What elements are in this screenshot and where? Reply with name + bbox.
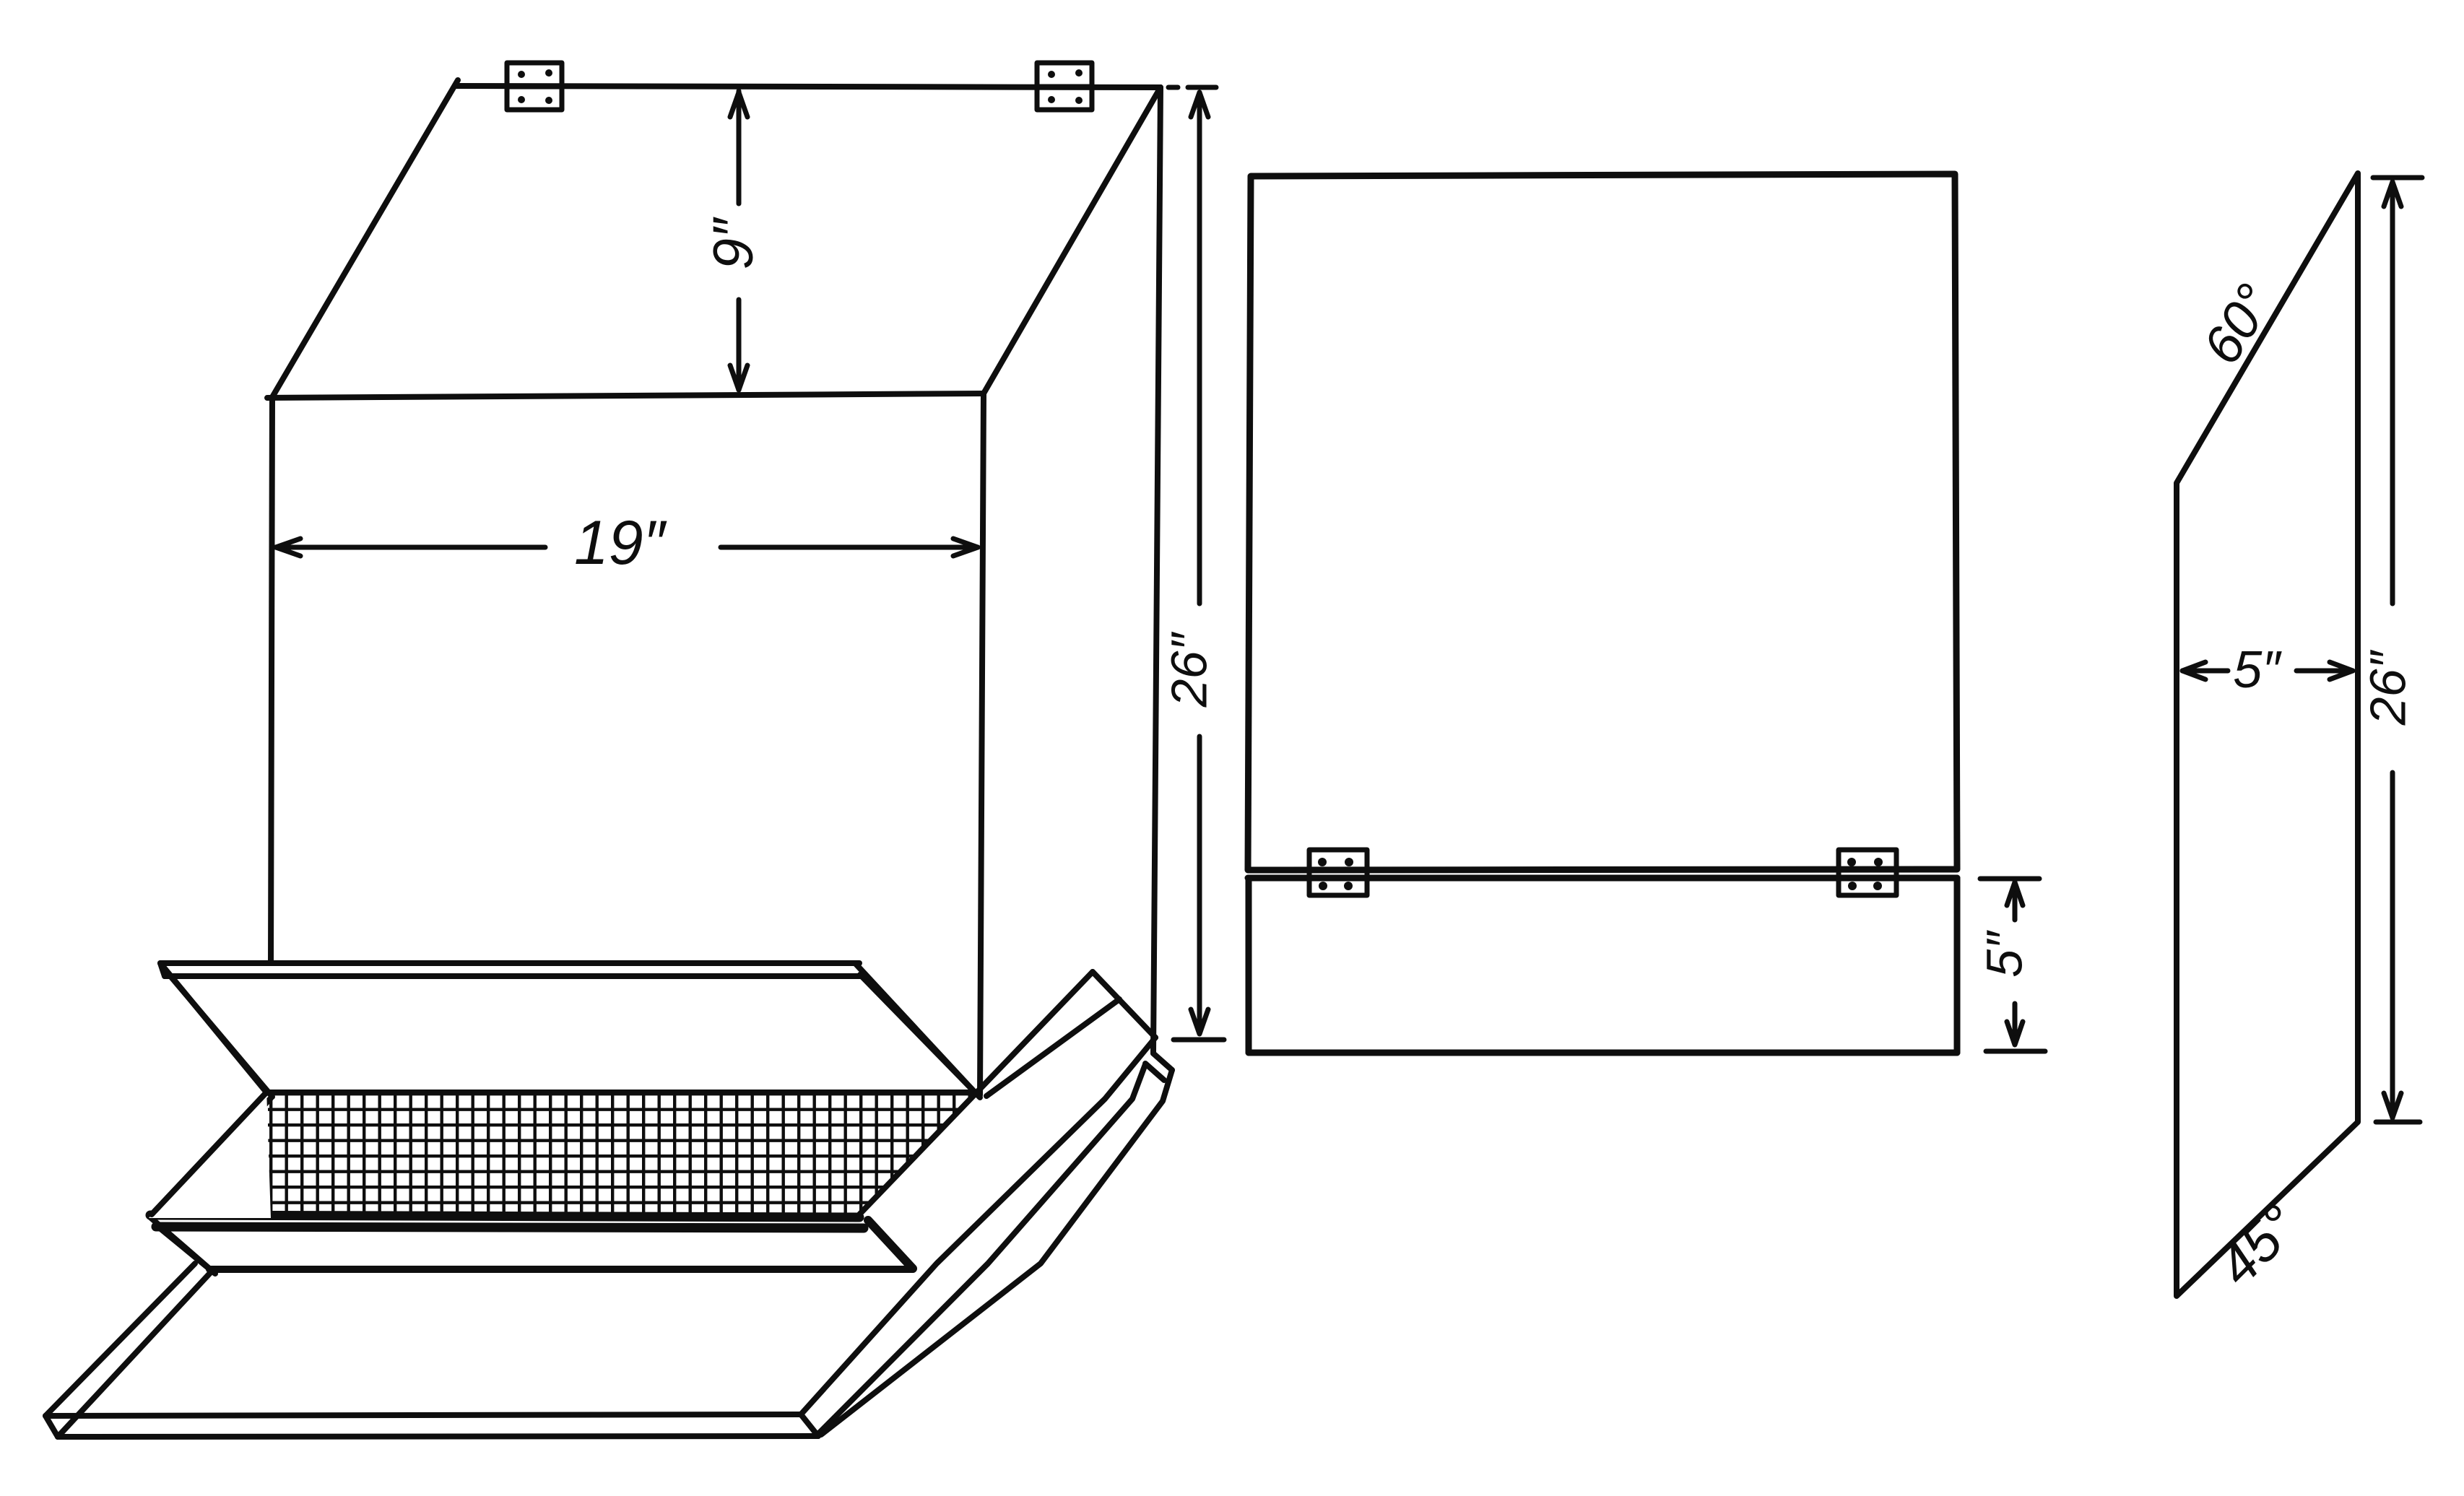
svg-text:26″: 26″ [1161,631,1217,708]
svg-text:19″: 19″ [574,508,667,578]
svg-text:9″: 9″ [701,217,765,269]
svg-text:26″: 26″ [2359,649,2416,726]
svg-text:5″: 5″ [2233,641,2282,699]
svg-text:5″: 5″ [1976,930,2032,978]
